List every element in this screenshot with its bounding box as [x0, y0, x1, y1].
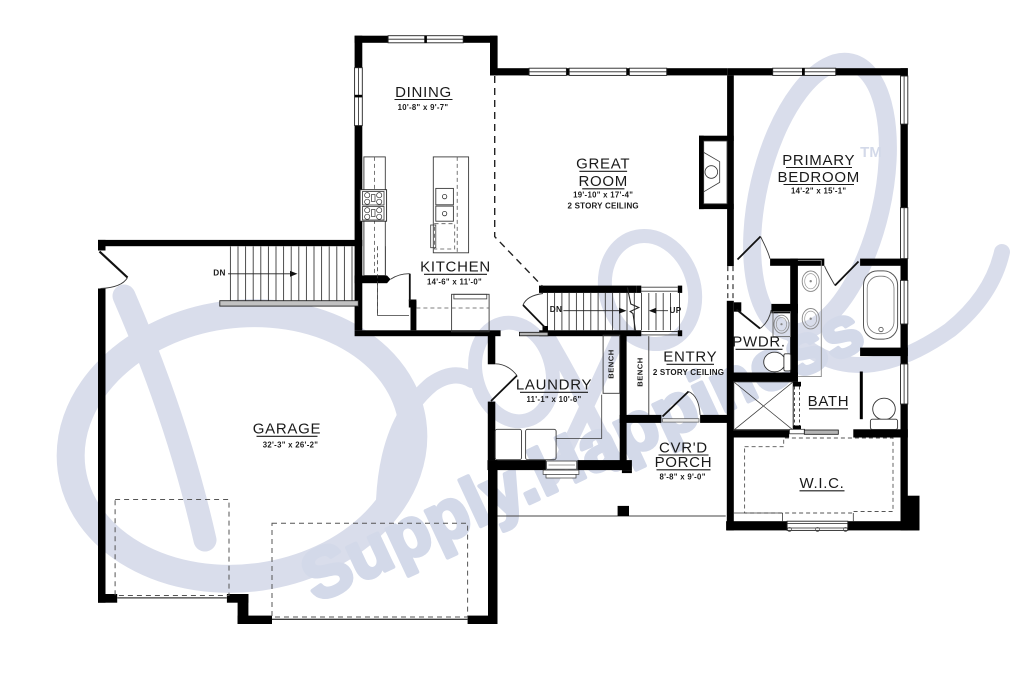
- svg-text:14'-2" x 15'-1": 14'-2" x 15'-1": [791, 187, 846, 196]
- svg-text:PWDR.: PWDR.: [732, 334, 786, 351]
- svg-text:2 STORY CEILING: 2 STORY CEILING: [568, 202, 639, 211]
- svg-text:BEDROOM: BEDROOM: [777, 169, 859, 186]
- svg-text:GREAT: GREAT: [576, 156, 630, 173]
- svg-text:LAUNDRY: LAUNDRY: [516, 377, 592, 394]
- svg-text:BENCH: BENCH: [636, 357, 645, 387]
- svg-text:8'-8" x 9'-0": 8'-8" x 9'-0": [659, 473, 705, 482]
- svg-text:ENTRY: ENTRY: [663, 349, 717, 366]
- svg-text:TM: TM: [860, 144, 882, 161]
- svg-text:2 STORY CEILING: 2 STORY CEILING: [653, 368, 724, 377]
- svg-text:GARAGE: GARAGE: [253, 421, 321, 438]
- svg-text:UP: UP: [670, 306, 682, 315]
- svg-text:W.I.C.: W.I.C.: [799, 475, 844, 492]
- svg-text:DN: DN: [213, 269, 225, 278]
- svg-text:PRIMARY: PRIMARY: [782, 152, 855, 169]
- svg-text:PORCH: PORCH: [655, 454, 713, 471]
- svg-text:11'-1" x 10'-6": 11'-1" x 10'-6": [526, 395, 581, 404]
- svg-text:DINING: DINING: [395, 84, 452, 101]
- svg-text:ROOM: ROOM: [578, 173, 627, 190]
- svg-text:32'-3" x 26'-2": 32'-3" x 26'-2": [263, 441, 318, 450]
- svg-text:19'-10" x 17'-4": 19'-10" x 17'-4": [573, 191, 633, 200]
- svg-text:14'-6" x 11'-0": 14'-6" x 11'-0": [427, 278, 482, 287]
- svg-text:DN: DN: [550, 305, 562, 314]
- svg-text:BENCH: BENCH: [607, 349, 616, 379]
- svg-text:BATH: BATH: [808, 393, 850, 410]
- svg-text:10'-8" x 9'-7": 10'-8" x 9'-7": [398, 103, 449, 112]
- svg-text:KITCHEN: KITCHEN: [420, 259, 491, 276]
